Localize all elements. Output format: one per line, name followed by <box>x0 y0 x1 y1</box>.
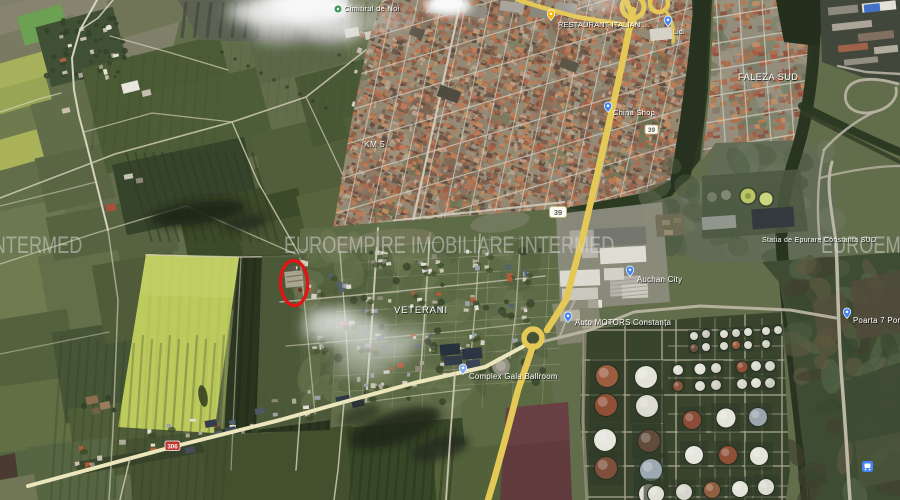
svg-text:EUROEMPIRE IMOBILIARE INTERMED: EUROEMPIRE IMOBILIARE INTERMED <box>284 230 614 258</box>
svg-text:Poarta 7 Port: Poarta 7 Port <box>853 316 900 325</box>
svg-text:FALEZA SUD: FALEZA SUD <box>738 72 799 82</box>
svg-text:RESTAURANT ITALIAN ...: RESTAURANT ITALIAN ... <box>558 20 649 29</box>
svg-text:VETERANI: VETERANI <box>394 305 448 316</box>
svg-text:Auto MOTORS Constanța: Auto MOTORS Constanța <box>575 318 672 327</box>
svg-text:KM 5: KM 5 <box>364 139 385 149</box>
svg-text:Lidl: Lidl <box>673 29 685 36</box>
svg-text:EUROEMPIRE IMOBILIARE INTERMED: EUROEMPIRE IMOBILIARE INTERMED <box>0 230 82 258</box>
svg-text:Auchan City: Auchan City <box>637 275 682 284</box>
svg-text:Complex Gala Ballroom: Complex Gala Ballroom <box>469 372 558 381</box>
svg-text:Statia de Epurare Constanta SU: Statia de Epurare Constanta SUD <box>762 237 876 244</box>
svg-text:Cimitirul de Noi: Cimitirul de Noi <box>344 4 400 13</box>
svg-text:China Shop: China Shop <box>613 108 655 117</box>
